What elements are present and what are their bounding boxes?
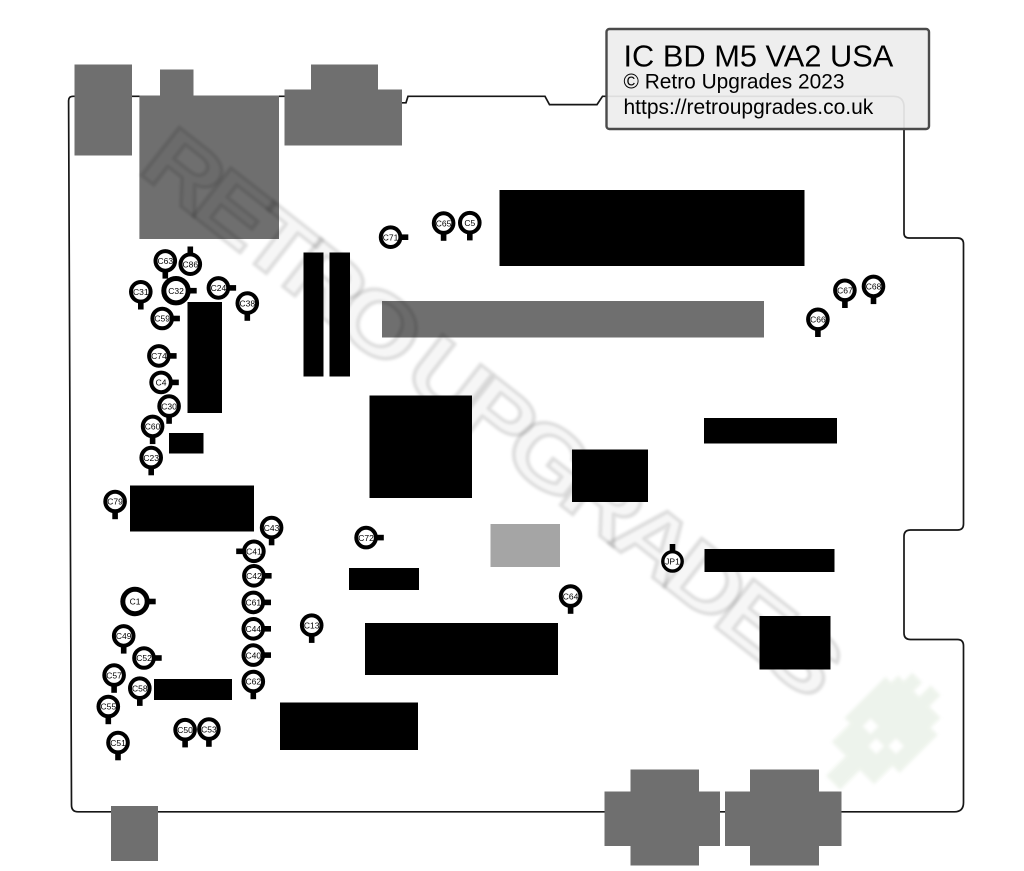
svg-text:C23: C23 bbox=[143, 453, 159, 463]
svg-text:C50: C50 bbox=[177, 725, 193, 735]
svg-text:IC BD M5 VA2 USA: IC BD M5 VA2 USA bbox=[624, 39, 894, 74]
svg-text:C53: C53 bbox=[201, 724, 217, 734]
svg-text:C72: C72 bbox=[358, 533, 374, 543]
svg-text:C71: C71 bbox=[383, 232, 399, 242]
svg-text:C68: C68 bbox=[866, 282, 882, 292]
svg-text:C1: C1 bbox=[130, 597, 141, 607]
svg-text:C59: C59 bbox=[154, 314, 170, 324]
svg-text:© Retro Upgrades 2023: © Retro Upgrades 2023 bbox=[624, 71, 845, 94]
svg-text:JP1: JP1 bbox=[665, 557, 680, 567]
svg-text:C74: C74 bbox=[151, 351, 167, 361]
svg-text:C4: C4 bbox=[156, 378, 167, 388]
svg-text:C66: C66 bbox=[810, 315, 826, 325]
svg-text:C65: C65 bbox=[436, 218, 452, 228]
svg-text:C67: C67 bbox=[837, 286, 853, 296]
svg-text:C63: C63 bbox=[158, 256, 174, 266]
svg-text:C86: C86 bbox=[183, 259, 199, 269]
svg-text:C62: C62 bbox=[246, 677, 262, 687]
svg-text:C41: C41 bbox=[246, 547, 262, 557]
svg-text:C55: C55 bbox=[101, 702, 117, 712]
svg-text:C43: C43 bbox=[264, 523, 280, 533]
svg-text:C52: C52 bbox=[136, 653, 152, 663]
svg-text:C49: C49 bbox=[116, 631, 132, 641]
svg-text:C5: C5 bbox=[464, 218, 475, 228]
svg-text:C44: C44 bbox=[246, 624, 262, 634]
svg-text:C57: C57 bbox=[106, 670, 122, 680]
svg-text:C60: C60 bbox=[145, 422, 161, 432]
svg-text:C61: C61 bbox=[246, 598, 262, 608]
svg-text:C58: C58 bbox=[132, 683, 148, 693]
svg-text:C30: C30 bbox=[161, 401, 177, 411]
svg-text:C13: C13 bbox=[304, 620, 320, 630]
svg-text:C32: C32 bbox=[168, 286, 184, 296]
svg-text:C51: C51 bbox=[110, 738, 126, 748]
svg-text:C79: C79 bbox=[107, 497, 123, 507]
svg-text:C40: C40 bbox=[246, 650, 262, 660]
svg-text:C42: C42 bbox=[246, 571, 262, 581]
svg-text:C38: C38 bbox=[240, 298, 256, 308]
svg-text:C31: C31 bbox=[133, 287, 149, 297]
svg-text:https://retroupgrades.co.uk: https://retroupgrades.co.uk bbox=[624, 96, 874, 119]
svg-text:C64: C64 bbox=[563, 591, 579, 601]
svg-text:C24: C24 bbox=[211, 283, 227, 293]
